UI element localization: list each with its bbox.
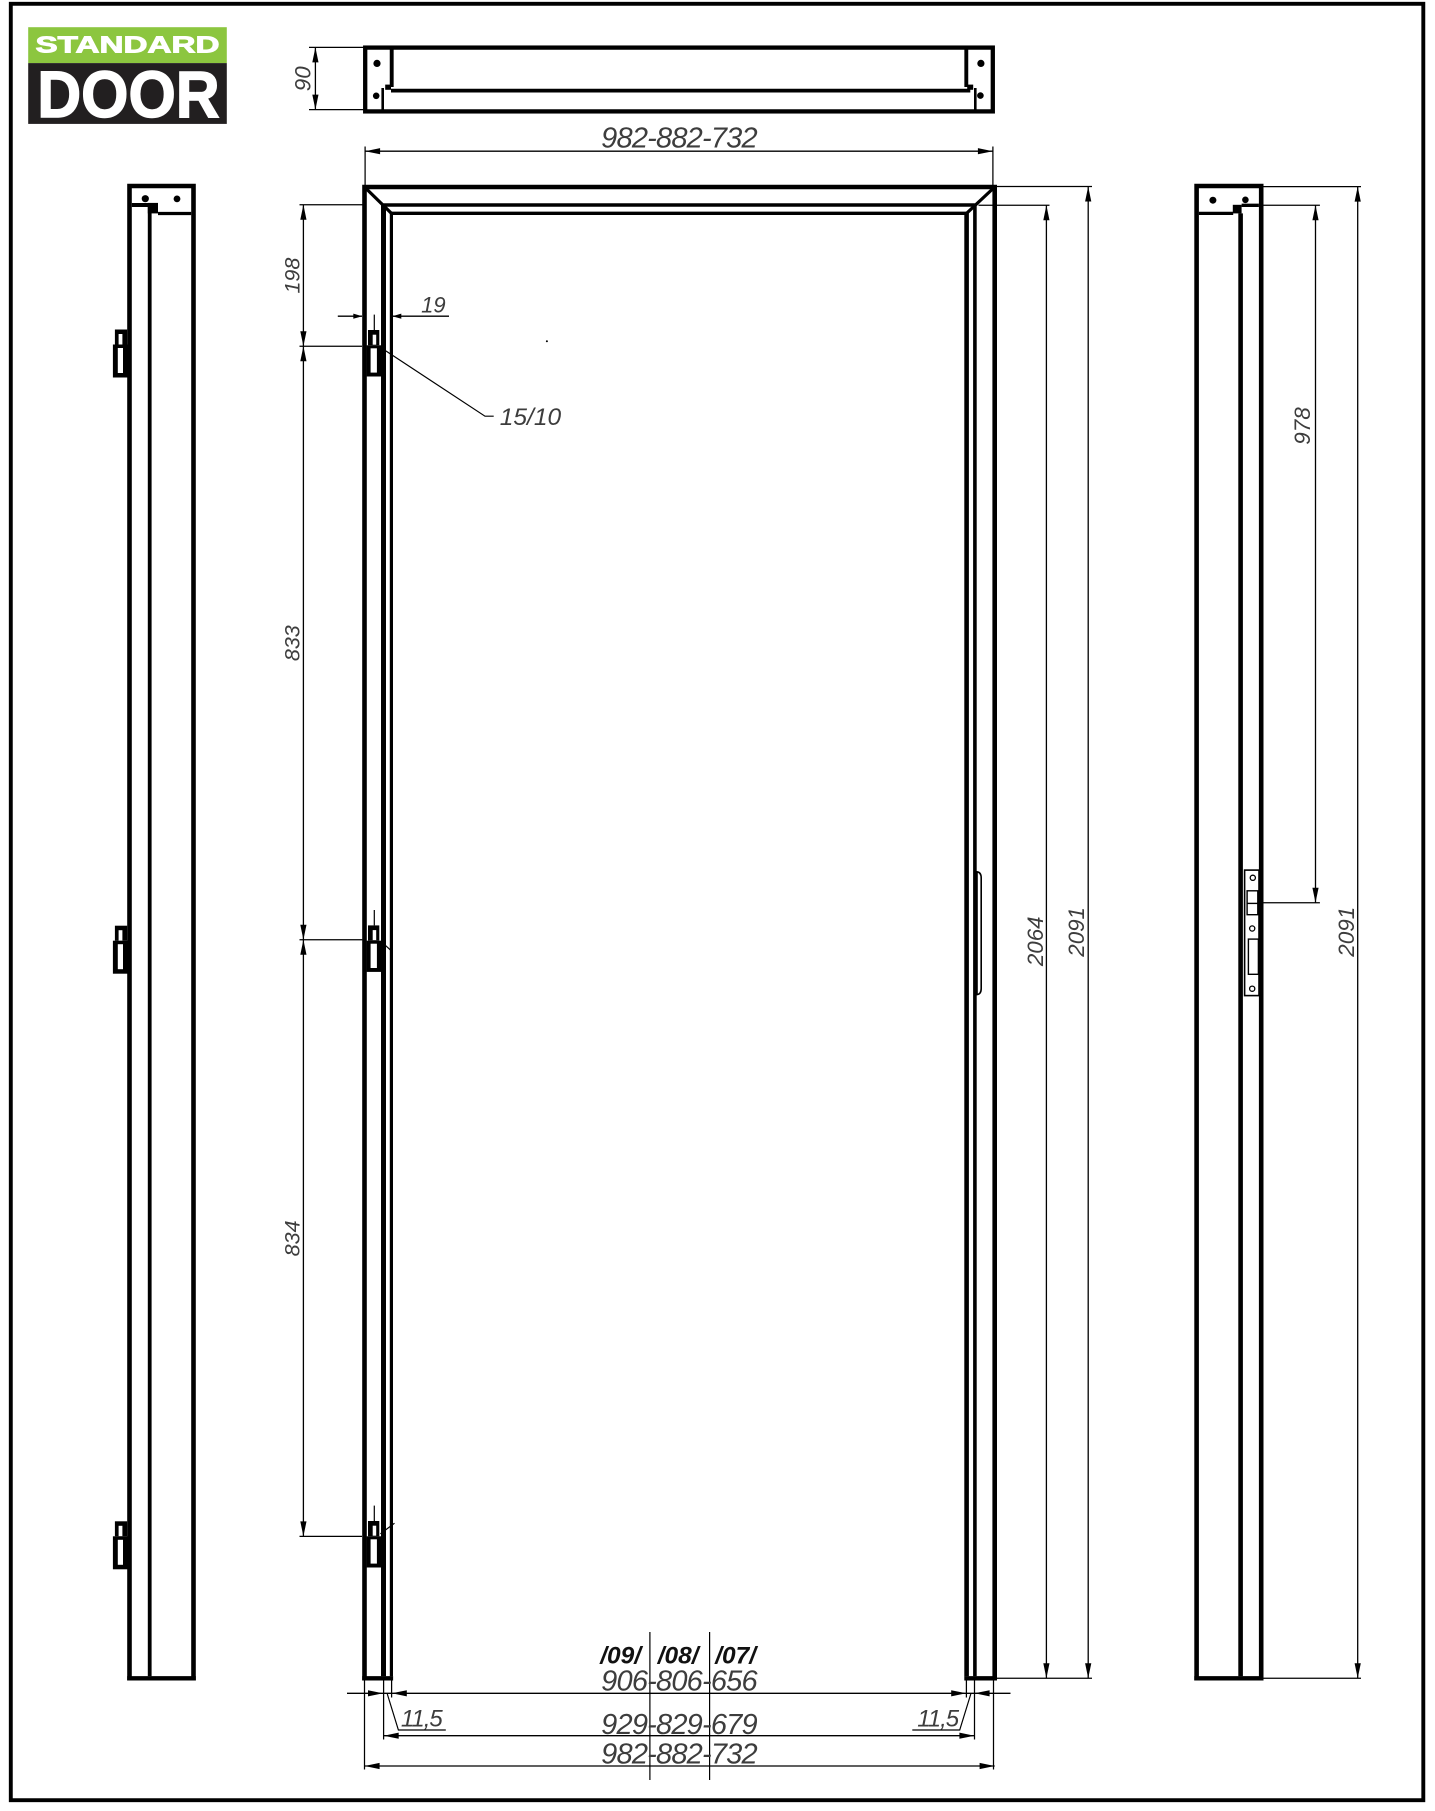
svg-text:906-806-656: 906-806-656 (601, 1666, 758, 1698)
svg-text:19: 19 (421, 293, 445, 318)
svg-text:833: 833 (280, 625, 304, 661)
svg-text:198: 198 (280, 258, 304, 294)
svg-text:2091: 2091 (1064, 907, 1089, 958)
svg-text:STANDARD: STANDARD (36, 32, 220, 58)
svg-text:982-882-732: 982-882-732 (601, 1739, 757, 1771)
svg-text:834: 834 (280, 1220, 304, 1256)
svg-text:11,5: 11,5 (917, 1705, 960, 1732)
svg-text:15/10: 15/10 (500, 404, 562, 431)
svg-text:978: 978 (1290, 407, 1315, 445)
svg-text:DOOR: DOOR (37, 57, 220, 131)
svg-text:2064: 2064 (1023, 916, 1048, 967)
svg-text:929-829-679: 929-829-679 (601, 1709, 757, 1741)
svg-text:90: 90 (291, 66, 316, 91)
svg-text:11,5: 11,5 (401, 1705, 444, 1732)
svg-text:982-882-732: 982-882-732 (601, 122, 757, 154)
svg-text:2091: 2091 (1334, 907, 1359, 958)
